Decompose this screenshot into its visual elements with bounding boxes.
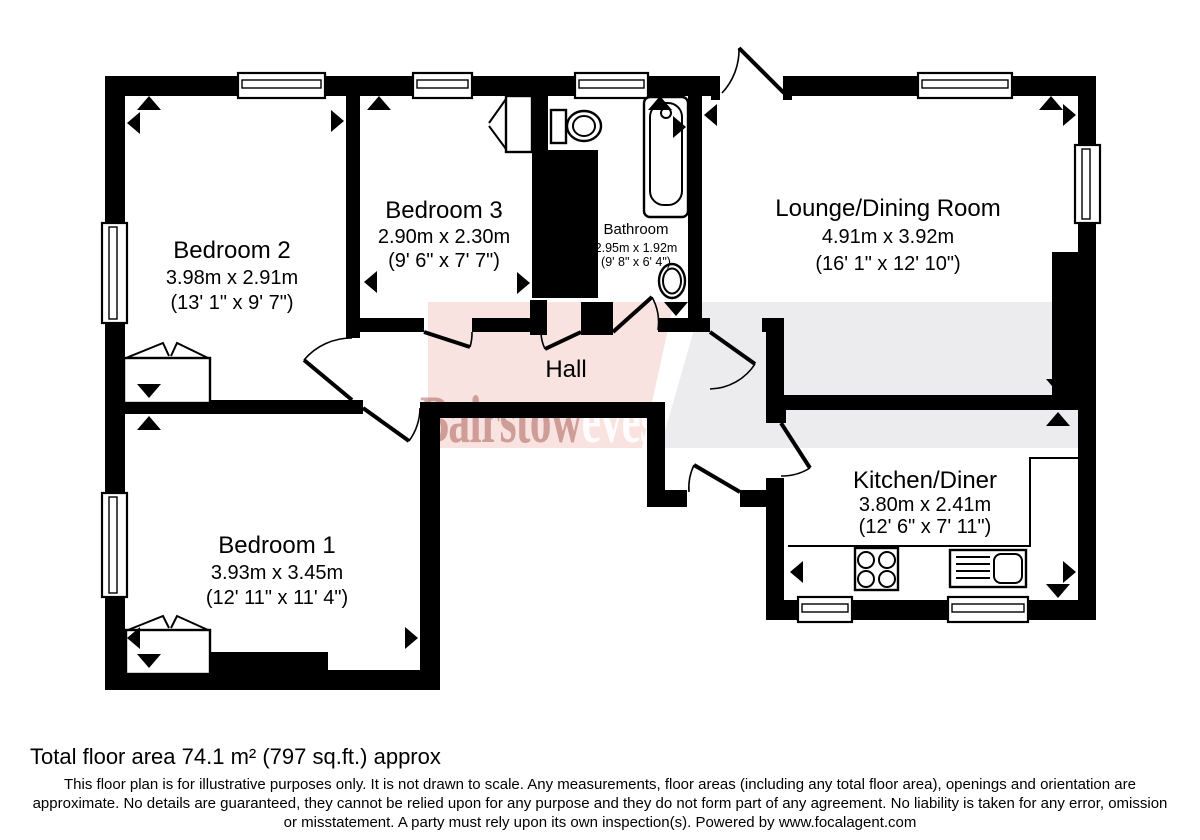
back-door [689,465,740,492]
room-name: Bathroom [603,221,668,238]
room-dim-imperial: (12' 6" x 7' 11") [859,516,992,538]
room-dim-metric: 4.91m x 3.92m [822,226,954,248]
window [102,493,127,597]
watermark-gray-band [660,302,1086,448]
room-dim-metric: 3.98m x 2.91m [166,267,298,289]
bedroom1-door [363,408,420,441]
room-dim-imperial: (12' 11" x 11' 4") [206,587,348,609]
lounge-label: Lounge/Dining Room 4.91m x 3.92m (16' 1"… [775,195,1000,275]
room-dim-metric: 3.80m x 2.41m [859,494,991,516]
kitchen-sink-unit [950,550,1026,587]
room-dim-imperial: (9' 6" x 7' 7") [388,250,500,272]
bathroom-label: Bathroom 2.95m x 1.92m (9' 8" x 6' 4") [595,221,678,269]
bedroom3-label: Bedroom 3 2.90m x 2.30m (9' 6" x 7' 7") [378,197,510,272]
room-name: Kitchen/Diner [853,467,997,494]
window [798,597,852,622]
room-name: Bedroom 3 [385,197,502,224]
window [948,597,1028,622]
window [918,73,1012,98]
bedroom1-label: Bedroom 1 3.93m x 3.45m (12' 11" x 11' 4… [206,532,348,609]
room-name: Bedroom 1 [218,532,335,559]
bedroom3-closet [489,96,532,152]
bedroom2-door [304,338,352,400]
room-dim-metric: 3.93m x 3.45m [211,562,343,584]
floorplan-drawing: Bairstoweves [0,0,1200,744]
bedroom2-wardrobe [124,343,210,403]
bathtub [644,97,688,217]
hall-label: Hall [545,356,586,383]
kitchen-label: Kitchen/Diner 3.80m x 2.41m (12' 6" x 7'… [853,467,997,538]
watermark-eves: eves [582,382,657,457]
footer: Total floor area 74.1 m² (797 sq.ft.) ap… [0,744,1200,832]
floorplan-page: Bairstoweves [0,0,1200,840]
window [413,73,472,98]
window [238,73,325,98]
toilet [551,110,601,143]
window [1075,145,1100,223]
front-door [722,48,784,93]
watermark-bairstow: Bairstow [420,382,582,457]
watermark-text: Bairstoweves [420,382,656,457]
disclaimer-text: This floor plan is for illustrative purp… [29,775,1171,832]
bathroom-sink [659,264,685,298]
bedroom2-label: Bedroom 2 3.98m x 2.91m (13' 1" x 9' 7") [166,237,298,314]
room-dim-imperial: (13' 1" x 9' 7") [171,292,294,314]
room-dim-imperial: (9' 8" x 6' 4") [601,255,671,269]
room-name: Lounge/Dining Room [775,195,1000,222]
room-dim-metric: 2.90m x 2.30m [378,226,510,248]
kitchen-hob [855,548,898,590]
total-floor-area: Total floor area 74.1 m² (797 sq.ft.) ap… [30,744,1200,770]
room-name: Hall [545,356,586,383]
room-dim-imperial: (16' 1" x 12' 10") [815,253,960,275]
window [102,223,127,323]
room-dim-metric: 2.95m x 1.92m [595,241,678,255]
room-name: Bedroom 2 [173,237,290,264]
window [575,73,648,98]
